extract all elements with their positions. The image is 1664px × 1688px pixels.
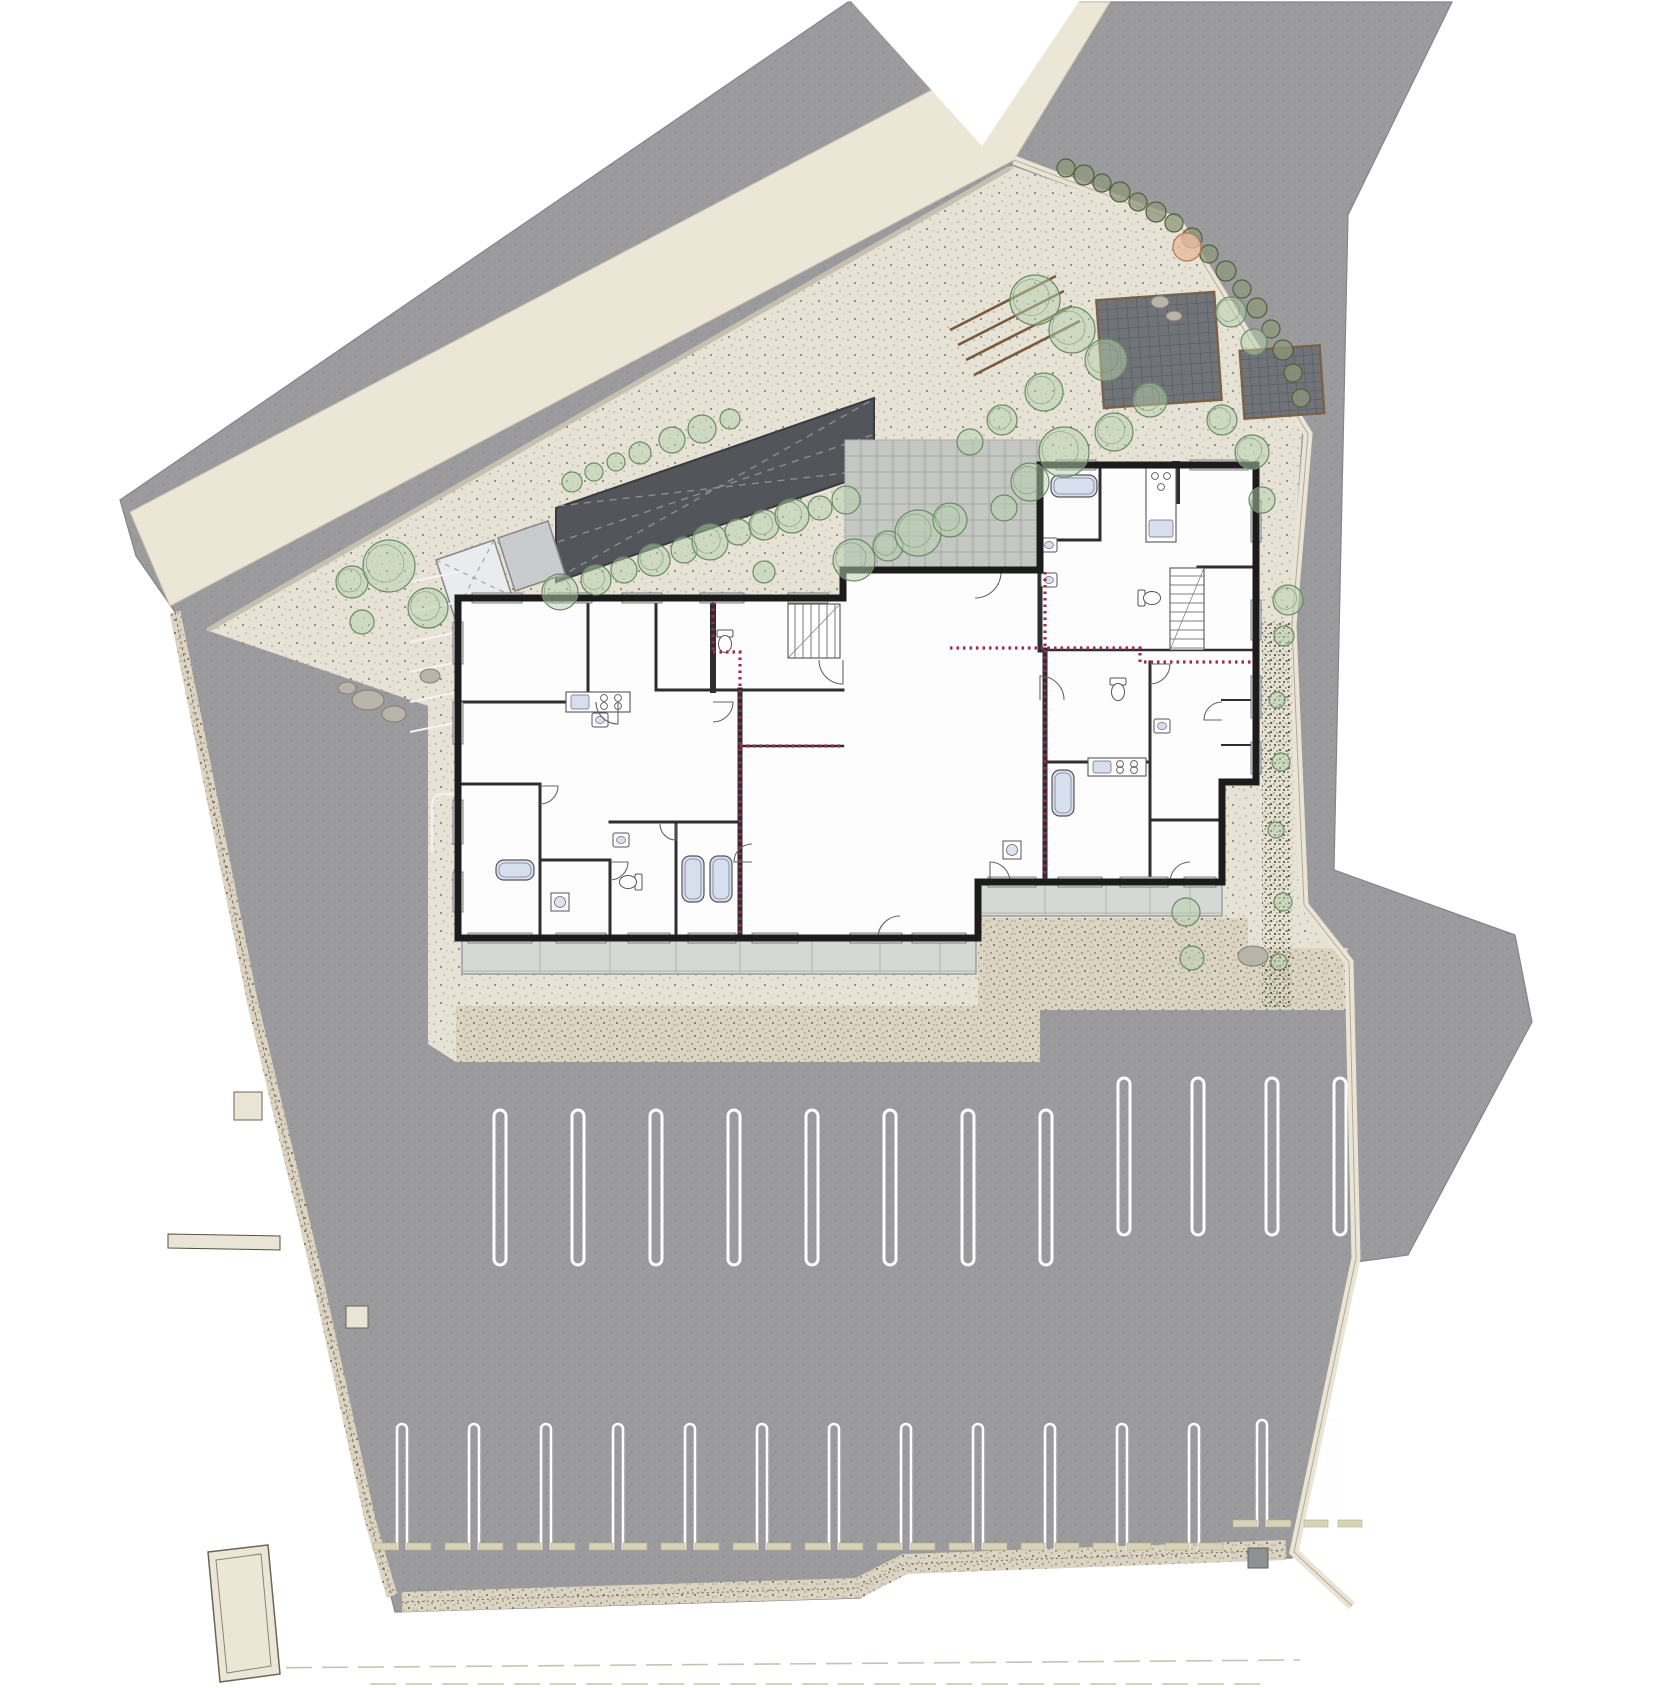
bathtub: [496, 860, 534, 880]
gravel-area: [456, 1006, 1040, 1062]
ornamental-tree: [1173, 233, 1201, 261]
tree: [832, 486, 860, 514]
rock: [1166, 311, 1182, 321]
staircase: [1170, 568, 1204, 650]
bathtub: [1052, 770, 1074, 816]
hedge-bush: [1233, 280, 1251, 298]
hedge-bush: [1284, 364, 1302, 382]
tree: [692, 524, 728, 560]
hedge-bush: [1057, 159, 1075, 177]
tree: [1133, 383, 1167, 417]
tree: [1274, 626, 1294, 646]
toilet: [717, 630, 733, 653]
tree: [1272, 753, 1290, 771]
hedge-bush: [1216, 261, 1236, 281]
tree: [638, 544, 670, 576]
site-plan-svg: [0, 0, 1664, 1688]
tree: [753, 561, 775, 583]
tree: [585, 463, 603, 481]
washbasin: [1154, 719, 1170, 733]
architectural-site-plan: [0, 0, 1664, 1688]
tree: [659, 427, 685, 453]
rock: [338, 682, 356, 694]
hedge-bush: [1074, 165, 1094, 185]
hedge-bush: [1165, 214, 1183, 232]
toilet: [1110, 678, 1126, 701]
staircase: [788, 604, 840, 658]
tree: [629, 442, 651, 464]
hedge-bush: [1093, 174, 1111, 192]
boundary-block: [346, 1306, 368, 1328]
tree: [933, 503, 967, 537]
hedge-bush: [1146, 202, 1166, 222]
hedge-bush: [1292, 389, 1310, 407]
rock: [420, 669, 440, 683]
tree: [1274, 893, 1292, 911]
tree: [611, 557, 637, 583]
tree: [1049, 307, 1095, 353]
tree: [725, 519, 751, 545]
tree: [1207, 405, 1237, 435]
tree: [688, 415, 716, 443]
east-hedge-strip: [1262, 620, 1292, 1008]
tree: [1085, 339, 1127, 381]
tree: [542, 574, 578, 610]
washing-machine: [551, 893, 569, 911]
tree: [991, 495, 1017, 521]
tree: [1025, 373, 1063, 411]
rock: [1238, 946, 1268, 966]
toilet: [1138, 590, 1161, 606]
tree: [775, 499, 809, 533]
tree: [1241, 329, 1267, 355]
retaining-wall: [168, 1234, 280, 1250]
tree: [350, 610, 374, 634]
tree: [1269, 692, 1285, 708]
hedge-bush: [1129, 193, 1147, 211]
tree: [1180, 946, 1204, 970]
washbasin: [613, 833, 629, 847]
tree: [1095, 413, 1133, 451]
bathtub: [1051, 475, 1097, 497]
tree: [562, 472, 582, 492]
outbuilding-sw: [208, 1545, 280, 1682]
tree: [581, 565, 611, 595]
kitchen-counter: [1088, 758, 1146, 776]
rock: [1151, 296, 1169, 308]
tree: [808, 496, 832, 520]
hedge-bush: [1247, 298, 1267, 318]
washing-machine: [1003, 841, 1021, 859]
tree: [833, 539, 875, 581]
tree: [957, 429, 983, 455]
hedge-bush: [1273, 340, 1293, 360]
tree: [1235, 435, 1269, 469]
kitchen-counter: [566, 692, 630, 712]
bathtub: [710, 856, 732, 902]
rock: [352, 690, 384, 710]
tree: [1271, 954, 1287, 970]
bathtub: [682, 856, 704, 902]
toilet: [620, 874, 643, 890]
tree: [1249, 487, 1275, 513]
tree: [1039, 427, 1089, 477]
tree: [1268, 822, 1284, 838]
boundary-block: [234, 1092, 262, 1120]
gravel-area: [978, 918, 1248, 1010]
tree: [1172, 898, 1200, 926]
tree: [408, 588, 448, 628]
tree: [607, 453, 625, 471]
tree: [363, 540, 415, 592]
tree: [720, 409, 740, 429]
terrace: [462, 940, 976, 974]
hedge-bush: [1110, 182, 1130, 202]
tree: [1273, 585, 1303, 615]
tree: [1216, 297, 1246, 327]
tree: [987, 405, 1017, 435]
rock: [382, 706, 406, 722]
tree: [1011, 463, 1049, 501]
kitchen-counter: [1146, 468, 1176, 542]
hedge-bush: [1200, 245, 1218, 263]
